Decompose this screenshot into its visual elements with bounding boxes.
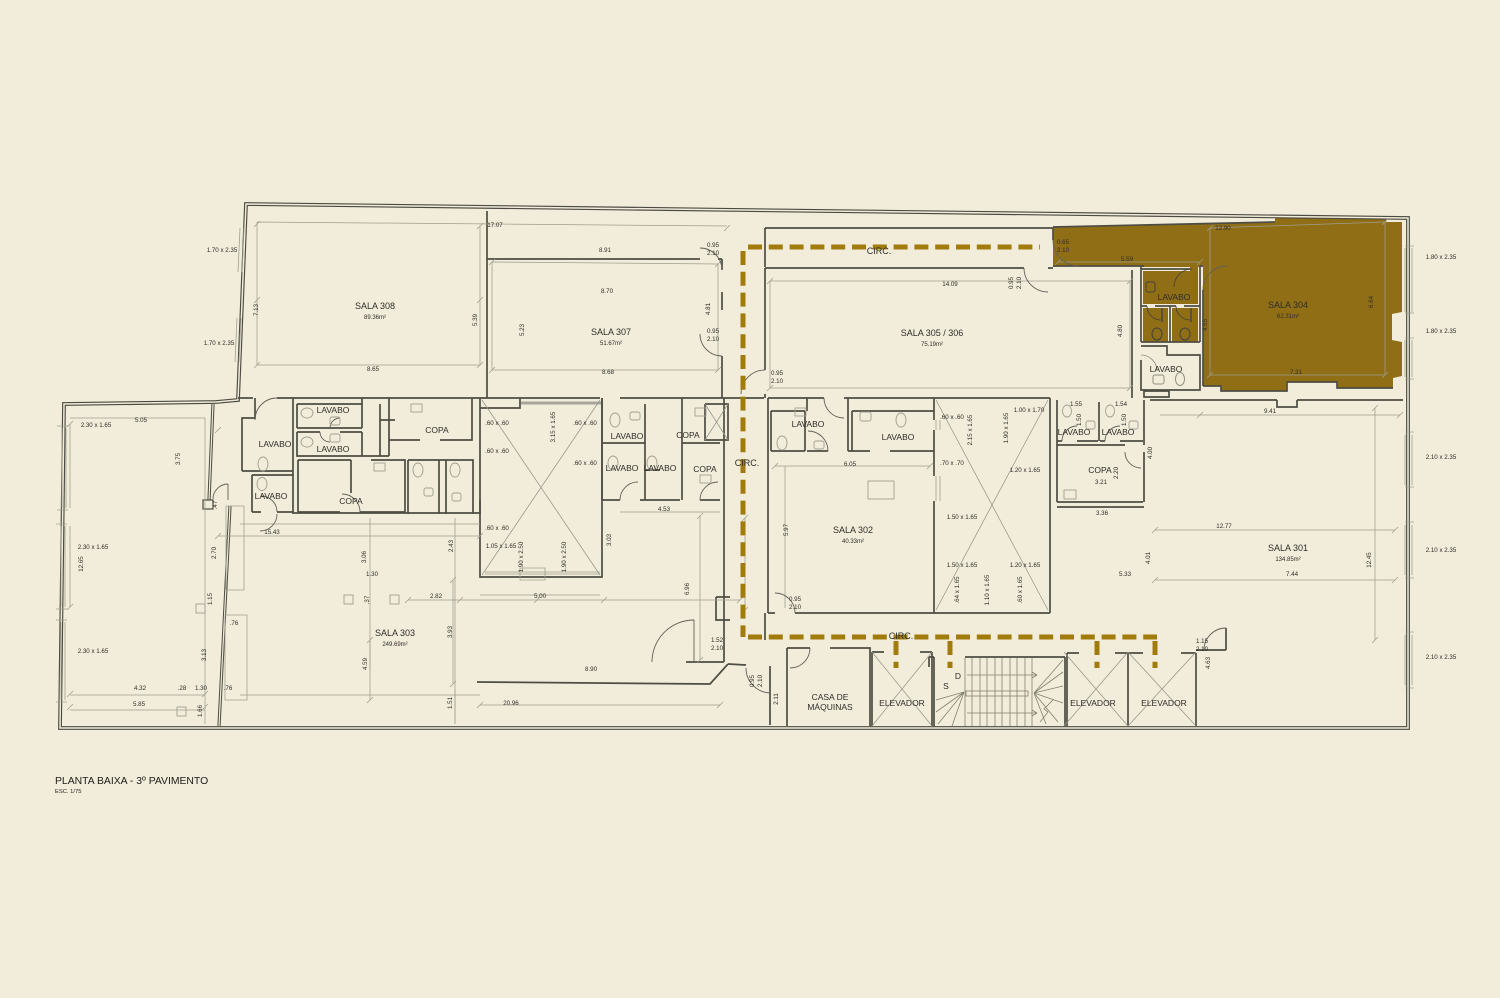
svg-text:LAVABO: LAVABO (792, 419, 825, 429)
svg-text:MÁQUINAS: MÁQUINAS (807, 702, 853, 712)
svg-text:0.95: 0.95 (707, 242, 720, 249)
svg-text:20.96: 20.96 (503, 700, 519, 707)
svg-text:SALA 303: SALA 303 (375, 628, 415, 638)
svg-text:1.90 x 1.65: 1.90 x 1.65 (1003, 412, 1010, 443)
svg-text:5.23: 5.23 (519, 323, 526, 336)
svg-text:ELEVADOR: ELEVADOR (879, 698, 925, 708)
svg-text:LAVABO: LAVABO (255, 491, 288, 501)
svg-text:.60 x .60: .60 x .60 (573, 460, 597, 467)
svg-text:9.41: 9.41 (1264, 408, 1277, 415)
svg-text:2.82: 2.82 (430, 593, 443, 600)
svg-text:4.01: 4.01 (1145, 551, 1152, 564)
svg-text:8.65: 8.65 (367, 366, 380, 373)
svg-text:0.95: 0.95 (707, 328, 720, 335)
svg-text:1.05 x 1.65: 1.05 x 1.65 (486, 543, 517, 550)
svg-text:.60 x .60: .60 x .60 (573, 420, 597, 427)
svg-text:LAVABO: LAVABO (1158, 292, 1191, 302)
svg-text:1.66: 1.66 (197, 704, 204, 717)
svg-text:1.70 x 2.35: 1.70 x 2.35 (204, 340, 235, 347)
svg-text:75.19m²: 75.19m² (921, 342, 943, 348)
svg-text:2.10 x 2.35: 2.10 x 2.35 (1426, 454, 1457, 461)
svg-text:12.45: 12.45 (1366, 552, 1373, 568)
svg-text:1.80 x 2.35: 1.80 x 2.35 (1426, 254, 1457, 261)
svg-text:1.15: 1.15 (1196, 638, 1209, 645)
svg-text:4.81: 4.81 (705, 302, 712, 315)
svg-text:7.13: 7.13 (253, 303, 260, 316)
svg-text:CIRC.: CIRC. (889, 631, 914, 641)
svg-text:COPA: COPA (1088, 465, 1112, 475)
svg-text:1.50 x 1.65: 1.50 x 1.65 (947, 514, 978, 521)
svg-text:1.51: 1.51 (447, 696, 454, 709)
svg-text:0.95: 0.95 (789, 596, 802, 603)
svg-text:3.13: 3.13 (201, 648, 208, 661)
svg-text:.60 x .60: .60 x .60 (485, 448, 509, 455)
svg-text:.60 x .60: .60 x .60 (485, 525, 509, 532)
svg-text:ESC. 1/75: ESC. 1/75 (55, 789, 81, 795)
svg-text:SALA 302: SALA 302 (833, 525, 873, 535)
svg-text:0.65: 0.65 (1057, 239, 1070, 246)
svg-text:1.20 x 1.65: 1.20 x 1.65 (1010, 562, 1041, 569)
svg-text:SALA 305 / 306: SALA 305 / 306 (901, 328, 964, 338)
svg-text:PLANTA BAIXA - 3º PAVIMENTO: PLANTA BAIXA - 3º PAVIMENTO (55, 776, 208, 787)
svg-text:2.20: 2.20 (1113, 466, 1120, 479)
svg-text:4.32: 4.32 (134, 685, 147, 692)
svg-text:1.30: 1.30 (366, 571, 379, 578)
svg-text:12.65: 12.65 (78, 556, 85, 572)
svg-text:1.80 x 2.35: 1.80 x 2.35 (1426, 328, 1457, 335)
svg-text:.60 x .60: .60 x .60 (485, 420, 509, 427)
svg-text:1.55: 1.55 (1070, 401, 1083, 408)
svg-text:.76: .76 (224, 685, 233, 692)
svg-text:3.03: 3.03 (606, 533, 613, 546)
svg-text:5.33: 5.33 (1119, 571, 1132, 578)
svg-text:3.75: 3.75 (175, 452, 182, 465)
svg-text:2.10: 2.10 (1057, 247, 1070, 254)
svg-text:6.64: 6.64 (1368, 295, 1375, 308)
svg-text:COPA: COPA (339, 496, 363, 506)
svg-text:.60 x .60: .60 x .60 (940, 414, 964, 421)
svg-text:1.90 x 2.50: 1.90 x 2.50 (518, 541, 525, 572)
svg-text:1.52: 1.52 (711, 637, 724, 644)
svg-text:2.30 x 1.65: 2.30 x 1.65 (78, 544, 109, 551)
svg-text:5.59: 5.59 (1121, 256, 1134, 263)
svg-text:6.05: 6.05 (844, 461, 857, 468)
svg-text:2.15 x 1.65: 2.15 x 1.65 (967, 414, 974, 445)
svg-text:2.30 x 1.65: 2.30 x 1.65 (81, 422, 112, 429)
svg-text:1.70 x 2.35: 1.70 x 2.35 (207, 247, 238, 254)
svg-text:0.95: 0.95 (771, 370, 784, 377)
svg-text:2.11: 2.11 (773, 693, 780, 705)
svg-text:CASA DE: CASA DE (812, 692, 849, 702)
svg-text:7.31: 7.31 (1290, 369, 1303, 376)
svg-text:.28: .28 (178, 685, 187, 692)
svg-text:12.90: 12.90 (1215, 225, 1231, 232)
svg-text:LAVABO: LAVABO (1102, 427, 1135, 437)
svg-text:249.69m²: 249.69m² (382, 642, 407, 648)
svg-text:5.85: 5.85 (133, 701, 146, 708)
svg-text:12.77: 12.77 (1216, 523, 1232, 530)
svg-text:62.31m²: 62.31m² (1277, 314, 1299, 320)
svg-text:2.70: 2.70 (211, 546, 218, 559)
svg-text:.60 x 1.65: .60 x 1.65 (1017, 576, 1024, 604)
svg-text:1.20 x 1.65: 1.20 x 1.65 (1010, 467, 1041, 474)
svg-text:LAVABO: LAVABO (882, 432, 915, 442)
svg-text:3.36: 3.36 (1096, 510, 1109, 517)
svg-text:2.10 x 2.35: 2.10 x 2.35 (1426, 547, 1457, 554)
svg-text:5.00: 5.00 (534, 593, 547, 600)
svg-text:LAVABO: LAVABO (317, 405, 350, 415)
svg-text:2.10 x 2.35: 2.10 x 2.35 (1426, 654, 1457, 661)
svg-text:S: S (943, 681, 949, 691)
svg-text:LAVABO: LAVABO (259, 439, 292, 449)
svg-text:.64 x 1.65: .64 x 1.65 (954, 576, 961, 604)
svg-text:1.30: 1.30 (195, 685, 208, 692)
svg-text:89.36m²: 89.36m² (364, 315, 386, 321)
svg-text:2.10: 2.10 (707, 250, 720, 257)
svg-text:2.10: 2.10 (771, 378, 784, 385)
svg-text:5.39: 5.39 (472, 313, 479, 326)
svg-text:3.21: 3.21 (1095, 479, 1108, 486)
svg-text:15.43: 15.43 (264, 529, 280, 536)
svg-text:1.50: 1.50 (1121, 413, 1128, 426)
svg-text:1.10 x 1.65: 1.10 x 1.65 (984, 574, 991, 605)
svg-text:D: D (955, 671, 961, 681)
svg-text:1.54: 1.54 (1115, 401, 1128, 408)
svg-text:SALA 308: SALA 308 (355, 301, 395, 311)
svg-text:COPA: COPA (676, 430, 700, 440)
svg-text:14.09: 14.09 (942, 281, 958, 288)
svg-text:COPA: COPA (693, 464, 717, 474)
svg-text:17.07: 17.07 (487, 222, 503, 229)
svg-text:4.53: 4.53 (658, 506, 671, 513)
svg-text:4.55: 4.55 (1202, 318, 1209, 331)
svg-text:8.70: 8.70 (601, 288, 614, 295)
svg-text:6.96: 6.96 (684, 582, 691, 595)
svg-text:2.10: 2.10 (1196, 646, 1209, 653)
svg-text:8.91: 8.91 (599, 247, 612, 254)
svg-text:1.15: 1.15 (207, 592, 214, 605)
svg-text:.76: .76 (230, 620, 239, 627)
svg-text:4.59: 4.59 (362, 657, 369, 670)
svg-text:8.90: 8.90 (585, 666, 598, 673)
svg-text:5.97: 5.97 (783, 523, 790, 536)
svg-text:3.06: 3.06 (361, 550, 368, 563)
svg-text:SALA 301: SALA 301 (1268, 543, 1308, 553)
svg-text:40.33m²: 40.33m² (842, 539, 864, 545)
svg-text:3.93: 3.93 (447, 625, 454, 638)
svg-text:.37: .37 (364, 595, 371, 604)
svg-text:2.10: 2.10 (1016, 276, 1023, 289)
svg-text:7.44: 7.44 (1286, 571, 1299, 578)
svg-text:ELEVADOR: ELEVADOR (1070, 698, 1116, 708)
svg-text:8.68: 8.68 (602, 369, 615, 376)
svg-text:2.10: 2.10 (757, 674, 764, 687)
svg-text:LAVABO: LAVABO (1150, 364, 1183, 374)
svg-text:COPA: COPA (425, 425, 449, 435)
svg-text:.70 x .70: .70 x .70 (940, 460, 964, 467)
svg-text:.47: .47 (212, 500, 219, 509)
svg-text:LAVABO: LAVABO (644, 463, 677, 473)
svg-text:2.10: 2.10 (711, 645, 724, 652)
svg-text:0.95: 0.95 (749, 674, 756, 687)
svg-text:SALA 304: SALA 304 (1268, 300, 1308, 310)
svg-text:2.30 x 1.65: 2.30 x 1.65 (78, 648, 109, 655)
svg-text:LAVABO: LAVABO (1058, 427, 1091, 437)
svg-text:1.90 x 2.50: 1.90 x 2.50 (561, 541, 568, 572)
svg-text:2.10: 2.10 (707, 336, 720, 343)
svg-text:LAVABO: LAVABO (611, 431, 644, 441)
svg-text:2.43: 2.43 (448, 539, 455, 552)
svg-text:CIRC.: CIRC. (735, 458, 760, 468)
svg-text:5.05: 5.05 (135, 417, 148, 424)
svg-text:LAVABO: LAVABO (606, 463, 639, 473)
svg-text:1.00 x 1.70: 1.00 x 1.70 (1014, 407, 1045, 414)
svg-text:1.50: 1.50 (1076, 413, 1083, 426)
svg-text:CIRC.: CIRC. (867, 246, 892, 256)
svg-text:4.63: 4.63 (1205, 656, 1212, 669)
svg-text:51.67m²: 51.67m² (600, 341, 622, 347)
svg-text:4.00: 4.00 (1147, 446, 1154, 459)
svg-text:3.15 x 1.65: 3.15 x 1.65 (550, 411, 557, 442)
svg-text:134.85m²: 134.85m² (1275, 557, 1300, 563)
svg-text:1.50 x 1.65: 1.50 x 1.65 (947, 562, 978, 569)
svg-text:SALA 307: SALA 307 (591, 327, 631, 337)
svg-text:0.95: 0.95 (1008, 276, 1015, 289)
svg-text:ELEVADOR: ELEVADOR (1141, 698, 1187, 708)
svg-text:4.80: 4.80 (1117, 324, 1124, 337)
svg-text:2.10: 2.10 (789, 604, 802, 611)
svg-text:LAVABO: LAVABO (317, 444, 350, 454)
